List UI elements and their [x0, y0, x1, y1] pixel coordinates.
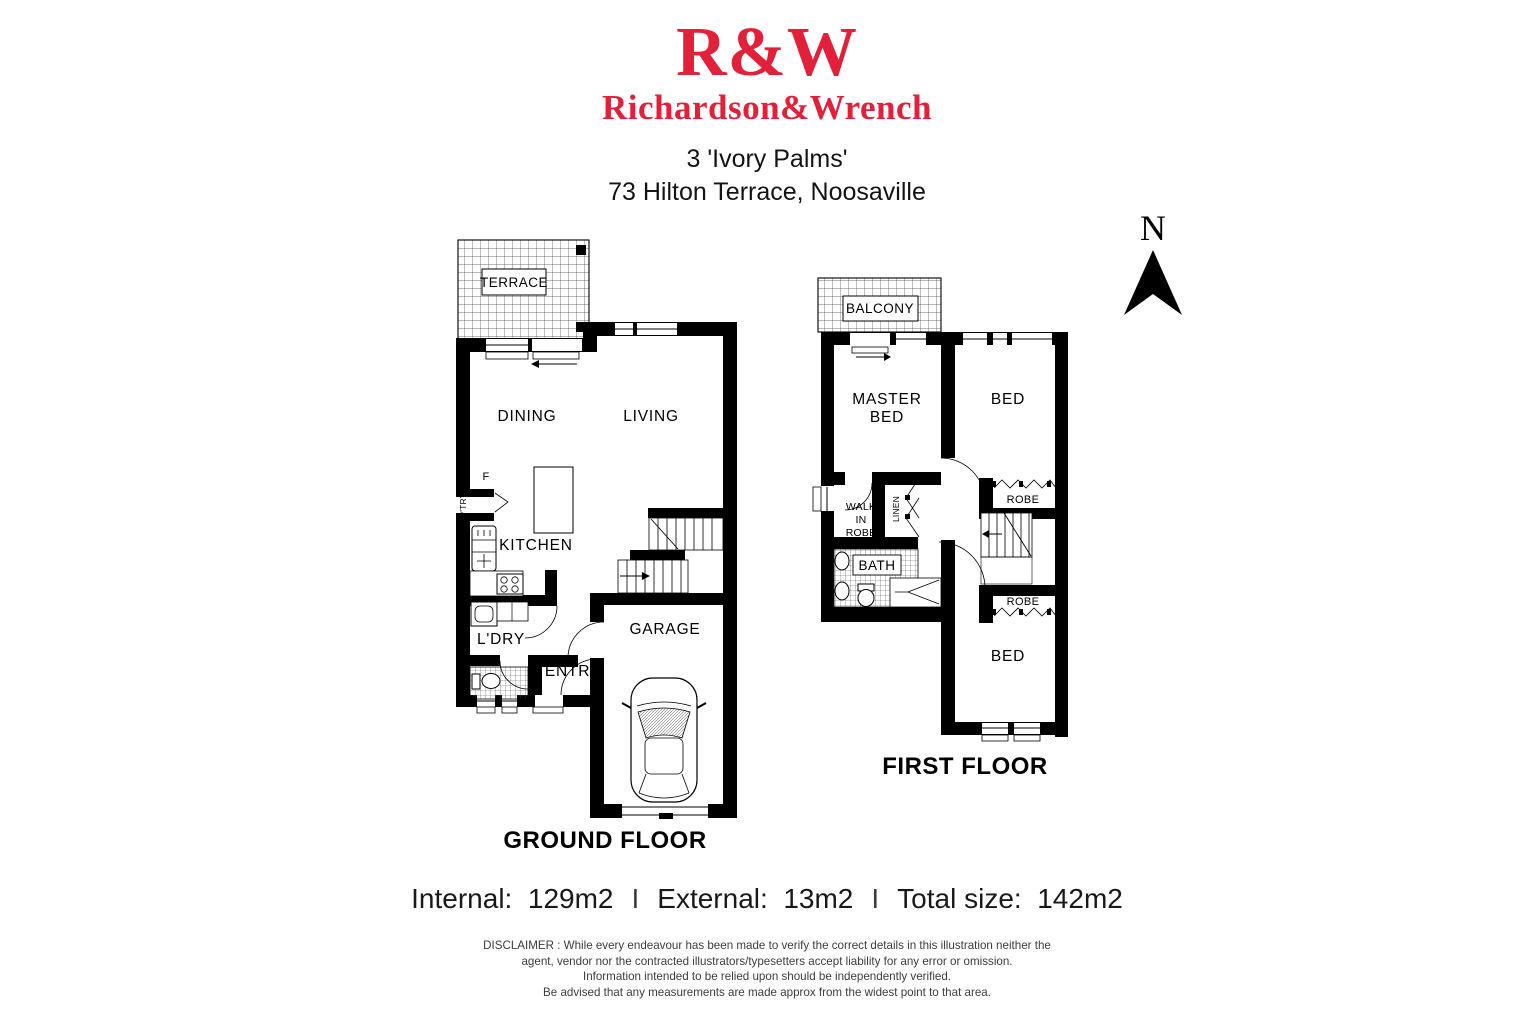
internal-area: Internal: 129m2: [411, 883, 613, 914]
toilet-icon: [858, 590, 874, 607]
garage-label: GARAGE: [629, 621, 700, 638]
laundry-label: L'DRY: [477, 631, 525, 648]
area-summary: Internal: 129m2IExternal: 13m2ITotal siz…: [0, 883, 1534, 915]
entry-label: ENTRY: [545, 663, 601, 680]
garage-entry-door-arc: [568, 622, 604, 658]
master-bed-label: MASTER: [852, 391, 921, 408]
pantry-bifold-door: [495, 493, 508, 512]
robe-rail: [994, 480, 1056, 488]
walk-in-robe-label: WALK: [846, 501, 876, 513]
disclaimer-line: Information intended to be relied upon s…: [0, 969, 1534, 985]
separator: I: [632, 883, 640, 914]
robe-lower-label: ROBE: [1007, 596, 1040, 608]
logo-monogram: R&W: [0, 18, 1534, 88]
rear-bed-window: [982, 723, 1008, 734]
total-area: Total size: 142m2: [897, 883, 1123, 914]
robe-rail: [994, 608, 1056, 616]
terrace-sliding-door-opening: [532, 339, 582, 351]
rear-bed-label: BED: [991, 648, 1025, 665]
car-icon: [622, 678, 706, 802]
front-door-opening: [535, 695, 563, 707]
ground-floor-plan: TERRACE DINING LIVING F P'TRY KITCHEN L'…: [450, 230, 750, 860]
dining-label: DINING: [497, 408, 556, 425]
balcony-label: BALCONY: [846, 301, 914, 316]
laundry-door-arc: [525, 606, 557, 638]
pantry-label: P'TRY: [458, 492, 468, 517]
linen-label: LINEN: [891, 496, 901, 522]
powder-room: [470, 661, 528, 699]
basin-icon: [835, 552, 849, 570]
laundry-counter: [497, 602, 528, 621]
address-line-2: 73 Hilton Terrace, Noosaville: [0, 180, 1534, 205]
front-bed-label: BED: [991, 391, 1025, 408]
terrace-sliding-door: [486, 352, 579, 368]
walk-in-robe-label: IN: [856, 514, 867, 526]
stairs-up-arrow: [642, 572, 650, 580]
north-label: N: [1140, 208, 1166, 248]
slide-direction-arrow: [531, 360, 539, 368]
external-area: External: 13m2: [657, 883, 853, 914]
disclaimer-line: Be advised that any measurements are mad…: [0, 985, 1534, 1001]
separator: I: [871, 883, 879, 914]
walk-in-robe-label: ROBE: [846, 527, 877, 539]
ground-floor-title: GROUND FLOOR: [450, 827, 760, 855]
first-floor-title: FIRST FLOOR: [810, 753, 1120, 781]
logo-wordmark: Richardson&Wrench: [0, 90, 1534, 125]
balcony-sliding-door-opening: [850, 333, 890, 345]
toilet-cistern: [472, 674, 480, 689]
entry-sills: [477, 707, 563, 713]
disclaimer-line: DISCLAIMER : While every endeavour has b…: [0, 938, 1534, 954]
terrace-post: [576, 245, 586, 255]
disclaimer-line: agent, vendor nor the contracted illustr…: [0, 954, 1534, 970]
front-bed-door-arc: [941, 458, 985, 502]
fridge-label: F: [482, 471, 489, 483]
north-compass: N: [1115, 200, 1195, 325]
master-bed-label: BED: [870, 409, 904, 426]
living-label: LIVING: [623, 408, 679, 425]
rear-bed-window: [1014, 723, 1040, 734]
kitchen-island: [534, 467, 573, 533]
staircase-upper: [981, 513, 1032, 584]
toilet-icon: [482, 674, 500, 689]
first-floor-plan: BALCONY MASTER BED BED WALK IN ROBE LINE…: [808, 270, 1073, 785]
linen-closet: [905, 478, 919, 537]
basin-icon: [835, 582, 849, 600]
north-arrow-icon: [1124, 250, 1182, 315]
kitchen-fixtures: [470, 467, 573, 596]
bath-label: BATH: [858, 558, 895, 573]
kitchen-label: KITCHEN: [499, 537, 573, 554]
robe-upper-label: ROBE: [1007, 494, 1040, 506]
address-line-1: 3 'Ivory Palms': [0, 147, 1534, 172]
cooktop-icon: [497, 574, 523, 594]
terrace-label: TERRACE: [480, 275, 548, 290]
disclaimer: DISCLAIMER : While every endeavour has b…: [0, 938, 1534, 1000]
slide-direction-arrow: [884, 353, 891, 361]
